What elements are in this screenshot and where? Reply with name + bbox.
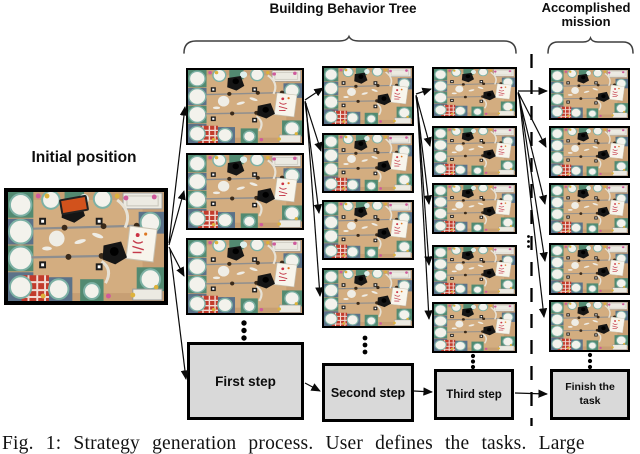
first-step-box: First step xyxy=(187,342,304,420)
tree-node-thumbnail xyxy=(322,66,414,126)
accomplished-mission-label: Accomplished mission xyxy=(533,1,639,29)
figure-caption: Fig. 1: Strategy generation process. Use… xyxy=(2,433,640,454)
tabletop-scene xyxy=(551,245,628,293)
tabletop-scene xyxy=(551,185,628,233)
tree-node-thumbnail xyxy=(322,268,414,328)
finish-task-label: Finish the task xyxy=(563,381,617,407)
accomplished-brace-icon xyxy=(548,38,633,53)
tree-node-thumbnail xyxy=(432,245,517,296)
building-behavior-tree-label: Building Behavior Tree xyxy=(243,2,443,16)
tree-node-thumbnail xyxy=(432,126,517,177)
tree-node-thumbnail xyxy=(549,183,630,235)
second-step-box: Second step xyxy=(322,363,414,422)
tabletop-scene xyxy=(324,202,412,258)
tree-node-thumbnail xyxy=(186,153,304,230)
third-step-box: Third step xyxy=(434,369,514,420)
figure-strategy-generation: Building Behavior Tree Accomplished miss… xyxy=(0,0,640,454)
tabletop-scene xyxy=(434,128,515,175)
tree-node-thumbnail xyxy=(549,243,630,295)
building-tree-brace-icon xyxy=(184,37,516,54)
finish-task-box: Finish the task xyxy=(550,369,630,420)
third-step-label: Third step xyxy=(446,389,502,401)
initial-position-image xyxy=(4,188,168,305)
tabletop-scene xyxy=(551,302,628,350)
tabletop-scene xyxy=(434,247,515,294)
tree-node-thumbnail xyxy=(322,133,414,193)
tree-node-thumbnail xyxy=(322,200,414,260)
tree-node-thumbnail xyxy=(549,126,630,178)
tabletop-scene xyxy=(434,69,515,116)
tabletop-scene xyxy=(324,68,412,124)
tabletop-scene xyxy=(434,304,515,351)
second-step-label: Second step xyxy=(331,386,405,400)
tree-node-thumbnail xyxy=(186,68,304,145)
tree-node-thumbnail xyxy=(432,67,517,118)
tree-node-thumbnail xyxy=(186,238,304,315)
first-step-label: First step xyxy=(215,374,276,389)
tree-node-thumbnail xyxy=(432,302,517,353)
tree-node-thumbnail xyxy=(549,68,630,120)
tabletop-scene xyxy=(434,185,515,232)
tabletop-scene xyxy=(188,155,302,228)
tabletop-scene xyxy=(551,128,628,176)
tabletop-scene xyxy=(324,135,412,191)
initial-position-label: Initial position xyxy=(10,150,158,166)
tabletop-scene xyxy=(188,70,302,143)
tabletop-scene xyxy=(551,70,628,118)
tree-node-thumbnail xyxy=(432,183,517,234)
tabletop-scene xyxy=(324,270,412,326)
tabletop-scene xyxy=(188,240,302,313)
tree-node-thumbnail xyxy=(549,300,630,352)
